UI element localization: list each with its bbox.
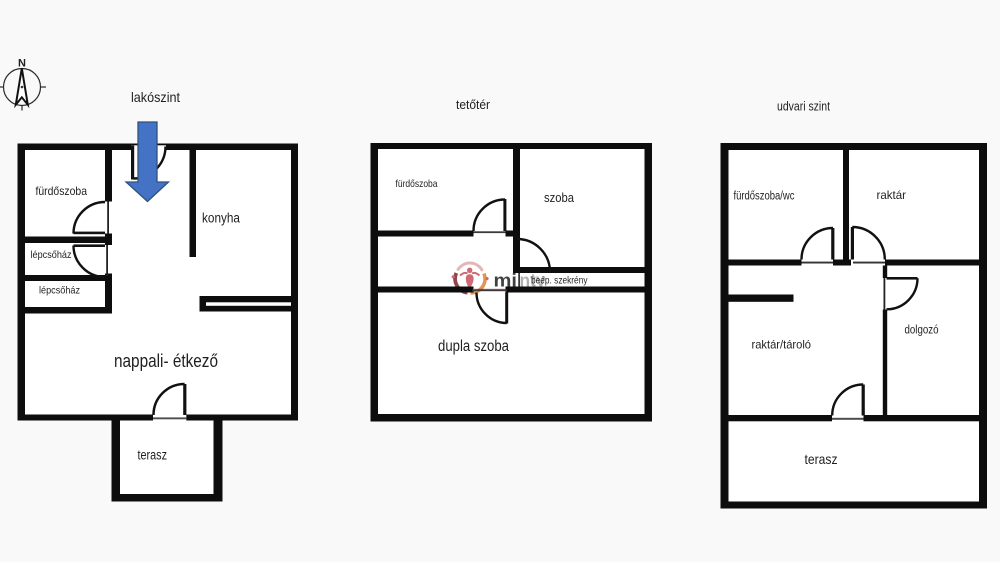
svg-text:nappali- étkező: nappali- étkező <box>114 351 218 371</box>
svg-text:konyha: konyha <box>202 211 240 226</box>
svg-text:lakószint: lakószint <box>131 89 180 105</box>
svg-text:szoba: szoba <box>544 190 575 205</box>
svg-text:terasz: terasz <box>805 451 838 467</box>
svg-text:fürdőszoba: fürdőszoba <box>36 184 88 198</box>
svg-text:terasz: terasz <box>138 448 168 463</box>
svg-text:dupla szoba: dupla szoba <box>438 338 509 355</box>
svg-text:N: N <box>18 58 26 70</box>
svg-text:raktár/tároló: raktár/tároló <box>752 338 812 352</box>
svg-text:lépcsőház: lépcsőház <box>31 249 72 261</box>
svg-text:dolgozó: dolgozó <box>905 325 939 337</box>
svg-text:raktár: raktár <box>877 188 907 202</box>
svg-text:lépcsőház: lépcsőház <box>39 285 80 297</box>
svg-text:beép. szekrény: beép. szekrény <box>531 276 588 287</box>
svg-text:fürdőszoba/wc: fürdőszoba/wc <box>734 191 795 203</box>
svg-text:fürdőszoba: fürdőszoba <box>396 178 438 190</box>
svg-text:tetőtér: tetőtér <box>456 98 490 112</box>
svg-text:udvari szint: udvari szint <box>777 100 830 114</box>
